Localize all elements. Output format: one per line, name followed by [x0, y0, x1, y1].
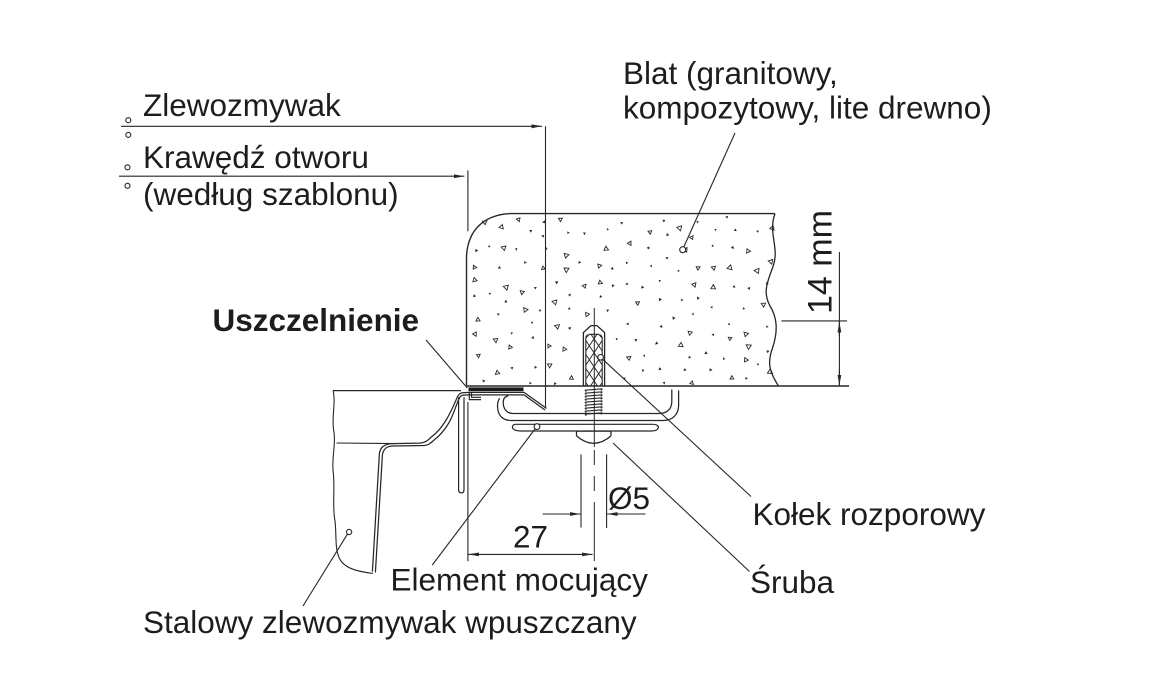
svg-text:kompozytowy, lite drewno): kompozytowy, lite drewno): [623, 90, 992, 126]
svg-text:14 mm: 14 mm: [802, 210, 840, 314]
svg-text:Element mocujący: Element mocujący: [391, 562, 649, 598]
svg-text:Krawędź otworu: Krawędź otworu: [143, 139, 369, 175]
svg-text:27: 27: [513, 519, 548, 555]
svg-text:Blat (granitowy,: Blat (granitowy,: [623, 55, 838, 91]
svg-text:Uszczelnienie: Uszczelnienie: [213, 302, 420, 338]
svg-text:Stalowy zlewozmywak wpuszczany: Stalowy zlewozmywak wpuszczany: [143, 604, 637, 640]
svg-text:Kołek rozporowy: Kołek rozporowy: [753, 496, 986, 532]
svg-text:Zlewozmywak: Zlewozmywak: [143, 87, 341, 123]
svg-text:(według szablonu): (według szablonu): [143, 176, 399, 212]
svg-text:Ø5: Ø5: [608, 480, 650, 516]
svg-text:Śruba: Śruba: [750, 564, 835, 600]
